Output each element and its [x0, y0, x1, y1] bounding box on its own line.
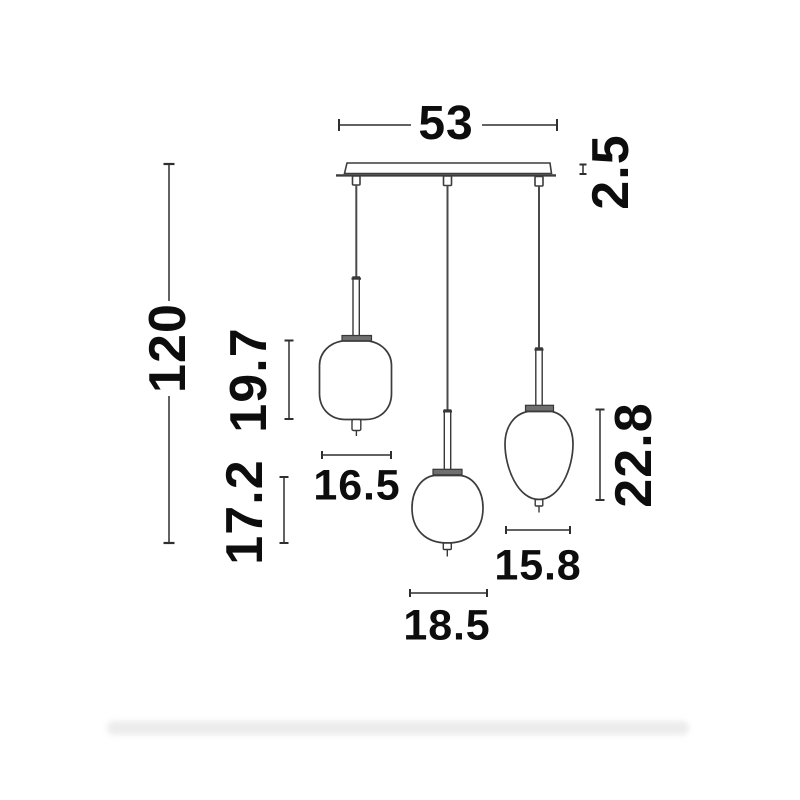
dim-line-drop-offset	[280, 477, 289, 543]
shade-finial-left	[352, 420, 361, 431]
dim-label-total-height: 120	[142, 303, 194, 393]
dim-line-shade-right-height	[596, 410, 605, 501]
rod-middle	[444, 410, 450, 470]
glass-shade-middle	[412, 476, 483, 544]
dim-line-shade-middle-width	[410, 589, 487, 597]
suspension-connector-left	[353, 176, 361, 185]
lamp-line-art	[0, 0, 800, 800]
floor-shadow	[107, 721, 689, 735]
rod-right	[536, 348, 542, 406]
dim-label-shade-right-height: 22.8	[608, 402, 660, 507]
rod-left	[353, 277, 359, 336]
dim-label-shade-left-height: 19.7	[223, 327, 275, 432]
glass-shade-left	[320, 341, 392, 420]
suspension-connector-middle	[444, 176, 452, 186]
diagram-canvas: 53 2.5 120 19.7 16.5 17.2 18.5 22.8 15.8	[0, 0, 800, 800]
dim-line-shade-right-width	[506, 526, 570, 534]
shade-finial-right	[535, 500, 543, 507]
dim-label-canopy-width: 53	[418, 100, 473, 148]
dim-label-drop-offset: 17.2	[219, 459, 271, 564]
dim-label-canopy-thickness: 2.5	[585, 134, 637, 209]
shade-cap-middle	[433, 469, 462, 475]
shade-cap-right	[526, 405, 554, 411]
dim-line-shade-left-width	[322, 451, 391, 459]
dim-line-shade-left-height	[285, 341, 294, 420]
suspension-connector-right	[535, 177, 543, 187]
dim-label-shade-middle-width: 18.5	[403, 605, 490, 648]
ceiling-canopy-group	[336, 163, 556, 186]
dim-label-shade-left-width: 16.5	[313, 465, 400, 508]
shade-finial-middle	[443, 543, 451, 550]
dim-label-shade-right-width: 15.8	[494, 545, 581, 588]
ceiling-canopy	[345, 163, 552, 174]
glass-shade-right	[505, 412, 573, 500]
